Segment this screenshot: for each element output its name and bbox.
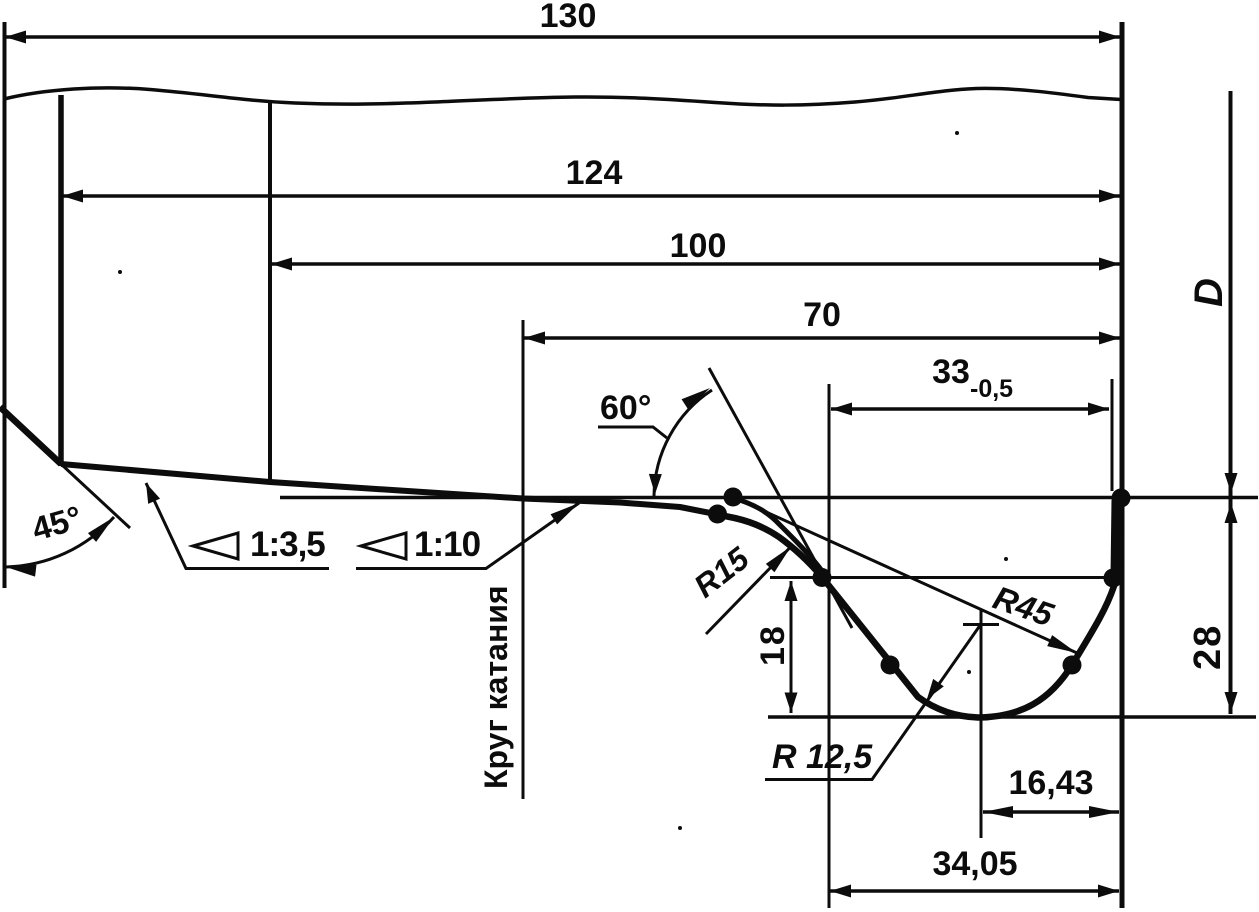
svg-text:100: 100 [670, 227, 727, 265]
svg-text:R45: R45 [989, 579, 1059, 634]
svg-text:33: 33 [932, 353, 970, 391]
svg-text:1:3,5: 1:3,5 [250, 525, 325, 564]
svg-text:70: 70 [803, 296, 841, 334]
svg-text:-0,5: -0,5 [970, 375, 1013, 403]
svg-text:Круг катания: Круг катания [478, 585, 514, 789]
svg-text:60°: 60° [600, 389, 651, 427]
svg-text:34,05: 34,05 [932, 845, 1017, 883]
svg-text:R 12,5: R 12,5 [772, 738, 873, 776]
svg-text:1:10: 1:10 [414, 525, 481, 564]
svg-text:18: 18 [754, 624, 792, 666]
svg-text:28: 28 [1187, 624, 1229, 670]
svg-text:D: D [1187, 278, 1231, 307]
svg-text:130: 130 [540, 0, 597, 35]
svg-text:124: 124 [566, 154, 623, 192]
svg-text:16,43: 16,43 [1008, 764, 1093, 802]
svg-text:45°: 45° [28, 498, 86, 547]
